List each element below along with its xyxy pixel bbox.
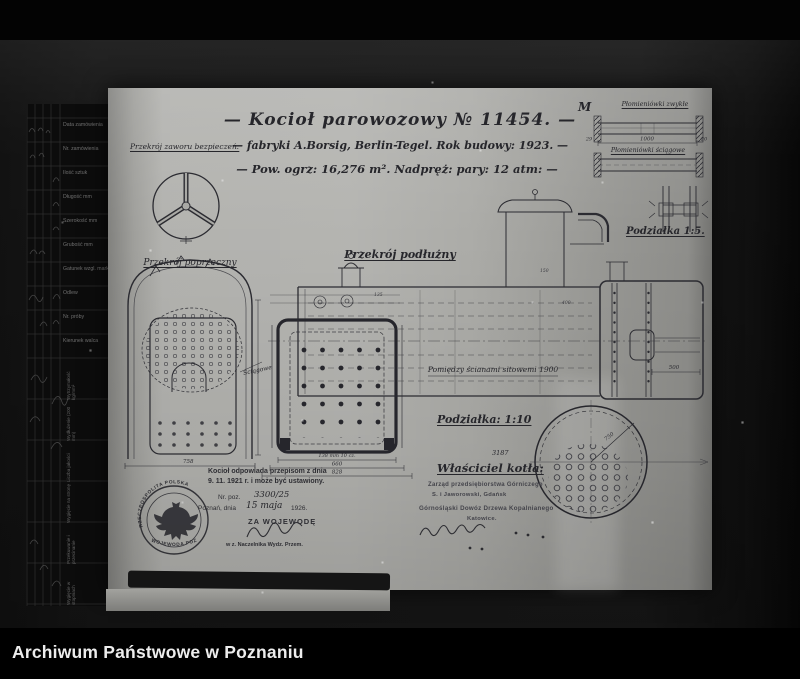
owner-stamp-line-1: Zarząd przedsiębiorstwa Górniczego <box>428 482 543 488</box>
label-between-tube-plates: Pomiędzy ścianami sitowemi 1900 <box>428 365 558 374</box>
cert-date-handwritten: 15 maja <box>246 501 282 511</box>
table-row-label-rotated: Wytrzymałość kg/mm² <box>66 360 108 400</box>
dust-specks <box>0 40 1 41</box>
cert-place: Poznań, dnia <box>198 505 236 512</box>
table-row-label: Grubość mm <box>63 242 93 248</box>
caption-bar: Archiwum Państwowe w Poznaniu <box>0 628 800 679</box>
label-scale-1-5: Podziałka 1:5. <box>626 226 705 237</box>
table-edge-shadow <box>128 571 390 591</box>
label-safety-valve-section: Przekrój zaworu bezpieczeń: <box>130 142 239 151</box>
label-longitudinal-section: Przekrój podłużny <box>344 248 455 261</box>
label-fire-tubes-stay: Płomieniówki ściągowe <box>611 147 685 154</box>
screenshot-root: Data zamówienia Nr. zamówienia Ilość szt… <box>0 0 800 679</box>
cert-signed-for: ZA WOJEWODĘ <box>248 517 316 526</box>
label-boiler-owner: Właściciel kotła: <box>437 461 544 475</box>
label-cross-section: Przekrój poprzeczny <box>143 258 236 268</box>
title-line-1: — Kocioł parowozowy № 11454. — <box>224 110 576 130</box>
title-line-2: — fabryki A.Borsig, Berlin-Tegel. Rok bu… <box>232 139 568 152</box>
underlying-page-edge <box>106 589 390 611</box>
cert-undersigned-note: w z. Naczelnika Wydz. Przem. <box>226 542 303 548</box>
side-specification-table: Data zamówienia Nr. zamówienia Ilość szt… <box>26 104 112 606</box>
owner-stamp-line-3: Górnośląski Dowóz Drzewa Kopalnianego <box>419 505 554 512</box>
cert-year: 1926. <box>291 505 307 512</box>
paper-fold-highlight <box>556 378 618 590</box>
label-fire-tubes-plain: Płomieniówki zwykłe <box>622 101 689 108</box>
cert-line-1: Kocioł odpowiada przepisom z dnia <box>208 468 327 475</box>
table-row-label-rotated: Przekuwanie i przecinanie <box>66 524 108 564</box>
corner-mark: M <box>578 100 591 114</box>
table-row-label: Długość mm <box>63 194 92 200</box>
cert-position-label: Nr. poz. <box>218 494 240 501</box>
table-row-label: Data zamówienia <box>63 122 103 128</box>
table-row-label-rotated: Wygięcie w stopniach <box>66 565 108 605</box>
table-row-label: Gatunek wzgl. marka <box>63 266 112 272</box>
owner-stamp-line-4: Katowice. <box>467 516 497 522</box>
table-row-label: Nr. zamówienia <box>63 146 98 152</box>
table-row-label: Nr. próby <box>63 314 84 320</box>
archive-caption: Archiwum Państwowe w Poznaniu <box>12 642 304 663</box>
registry-number: 3187 <box>492 449 509 457</box>
table-row-label: Kierunek walca <box>63 338 98 344</box>
cert-line-2: 9. 11. 1921 r. i może być ustawiony. <box>208 478 324 485</box>
owner-stamp-line-2: S. i Jaworowski, Gdańsk <box>432 492 507 498</box>
table-row-label-rotated: Wygięcie na stronę <box>66 483 108 523</box>
title-line-3: — Pow. ogrz: 16,276 m². Nadpręż: pary: 1… <box>236 162 557 176</box>
table-row-label-rotated: Liczba jakości <box>66 442 108 482</box>
table-row-label: Odlew <box>63 290 78 296</box>
label-scale-1-10: Podziałka: 1:10 <box>437 413 531 426</box>
table-row-label: Ilość sztuk <box>63 170 87 176</box>
table-row-label: Szerokość mm <box>63 218 97 224</box>
table-row-label-rotated: Wydłużenie (200 mm) <box>66 401 108 441</box>
cert-position-value: 3300/25 <box>254 490 289 500</box>
